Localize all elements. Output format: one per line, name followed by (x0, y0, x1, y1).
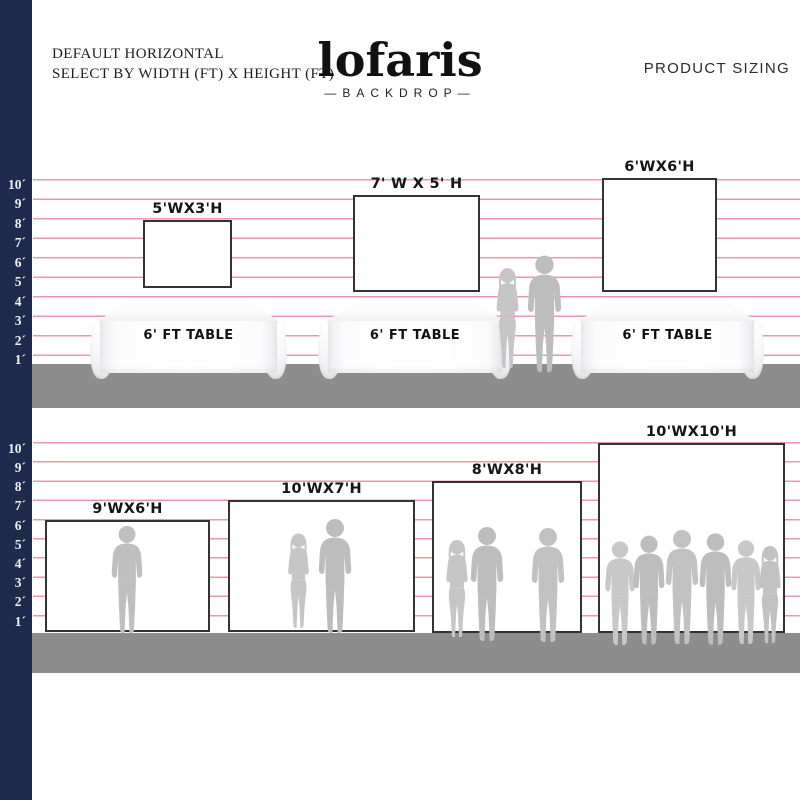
man-silhouette-icon (700, 533, 732, 644)
table-6ft: 6' FT TABLE (97, 298, 280, 373)
silhouette-single-man (104, 525, 150, 638)
ruler-label: 4´ (0, 294, 26, 310)
tablecloth-front: 6' FT TABLE (100, 321, 278, 373)
woman-silhouette-icon (288, 533, 309, 628)
tabletop (97, 298, 280, 322)
silhouette-group (600, 527, 786, 650)
ruler-label: 1´ (0, 352, 26, 368)
ruler-label: 10´ (0, 441, 26, 457)
backdrop-size-label: 9'WX6'H (45, 501, 210, 517)
man-silhouette-icon (532, 528, 564, 642)
tabletop (578, 298, 757, 322)
backdrop-size-label: 6'WX6'H (602, 159, 717, 175)
table-6ft: 6' FT TABLE (325, 298, 505, 373)
tabletop (325, 298, 505, 322)
brand-tagline: —BACKDROP— (290, 86, 510, 100)
table-label: 6' FT TABLE (622, 328, 712, 343)
ruler-label: 7´ (0, 235, 26, 251)
man-silhouette-icon (731, 540, 760, 644)
backdrop-rect-5x3 (143, 220, 232, 288)
ruler-label: 10´ (0, 177, 26, 193)
backdrop-size-label: 5'WX3'H (143, 201, 232, 217)
silhouette-couple (487, 253, 569, 378)
ruler-label: 9´ (0, 460, 26, 476)
ruler-label: 6´ (0, 255, 26, 271)
man-silhouette-icon (471, 527, 503, 641)
woman-silhouette-icon (759, 546, 780, 643)
backdrop-size-label: 10'WX10'H (598, 424, 785, 440)
man-silhouette-icon (634, 536, 665, 645)
man-silhouette-icon (605, 541, 634, 645)
ruler-label: 8´ (0, 479, 26, 495)
table-6ft: 6' FT TABLE (578, 298, 757, 373)
backdrop-size-label: 8'WX8'H (432, 462, 582, 478)
silhouette-trio (439, 520, 575, 647)
woman-silhouette-icon (497, 268, 519, 368)
ruler-label: 7´ (0, 498, 26, 514)
backdrop-rect-6x6 (602, 178, 717, 292)
silhouette-couple (281, 517, 361, 638)
ruler-bar (0, 0, 32, 800)
brand-name: lofaris (290, 36, 510, 84)
man-silhouette-icon (528, 256, 561, 373)
backdrop-size-label: 10'WX7'H (228, 481, 415, 497)
ruler-label: 3´ (0, 313, 26, 329)
ruler-label: 9´ (0, 196, 26, 212)
ruler-label: 8´ (0, 216, 26, 232)
table-label: 6' FT TABLE (143, 328, 233, 343)
table-label: 6' FT TABLE (370, 328, 460, 343)
product-sizing-diagram: DEFAULT HORIZONTAL SELECT BY WIDTH (FT) … (0, 0, 800, 800)
ruler-label: 5´ (0, 537, 26, 553)
ruler-label: 2´ (0, 594, 26, 610)
brand-logo: lofaris —BACKDROP— (290, 36, 510, 100)
ruler-label: 4´ (0, 556, 26, 572)
backdrop-size-label: 7' W X 5' H (353, 176, 480, 192)
tablecloth-front: 6' FT TABLE (581, 321, 755, 373)
page-title: PRODUCT SIZING (640, 60, 790, 77)
ruler-label: 2´ (0, 333, 26, 349)
tablecloth-front: 6' FT TABLE (328, 321, 503, 373)
backdrop-rect-7x5 (353, 195, 480, 292)
man-silhouette-icon (666, 530, 698, 644)
man-silhouette-icon (319, 519, 351, 633)
man-silhouette-icon (112, 526, 143, 633)
ruler-label: 5´ (0, 274, 26, 290)
ruler-label: 6´ (0, 518, 26, 534)
ruler-label: 1´ (0, 614, 26, 630)
ruler-label: 3´ (0, 575, 26, 591)
woman-silhouette-icon (446, 540, 467, 637)
